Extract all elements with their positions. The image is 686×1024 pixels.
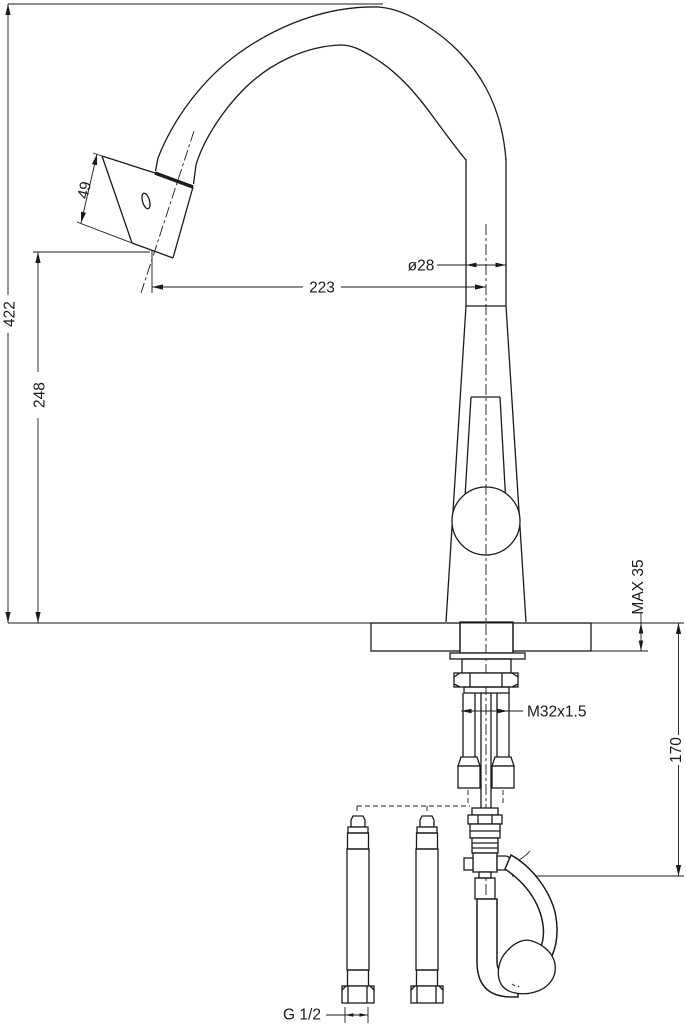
hose-crimp-nut	[475, 878, 495, 899]
hose-connector-assembly	[464, 808, 510, 899]
dim-label-g12: G 1/2	[283, 1006, 321, 1023]
hose-hex-nut	[411, 986, 443, 1003]
dimension-d28-spout-diameter: ø28	[408, 257, 506, 274]
dim-label-248: 248	[31, 382, 48, 408]
dim-label-170: 170	[668, 737, 685, 763]
threaded-shank	[460, 622, 513, 653]
dim-label-d28: ø28	[408, 257, 435, 274]
supply-hose-2	[411, 816, 443, 1003]
faucet-installation-diagram: 422 248 49 223 ø28 MAX 35 M32x1.5	[0, 0, 686, 1024]
dimension-49-spray-head: 49	[75, 153, 132, 243]
dim-label-m32: M32x1.5	[527, 703, 586, 720]
countertop-slab-left	[371, 623, 460, 651]
dimension-max35-countertop: MAX 35	[591, 559, 648, 651]
dimension-g12-supply-thread: G 1/2	[283, 1006, 368, 1023]
mounting-shank	[450, 622, 525, 693]
braided-hose-body	[416, 849, 438, 970]
dimension-422-total-height: 422	[1, 4, 383, 623]
braided-hose-body	[347, 849, 369, 970]
spout-outer-curve	[156, 7, 507, 171]
dimension-223-reach: 223	[152, 250, 486, 296]
technical-drawing-page: 422 248 49 223 ø28 MAX 35 M32x1.5	[0, 0, 686, 1024]
dimension-248-spout-height: 248	[31, 252, 150, 623]
spray-head-seam	[155, 173, 193, 187]
countertop-slab-right	[513, 623, 591, 651]
spout-inner-curve	[194, 45, 467, 184]
spray-head	[102, 131, 194, 293]
dimension-m32-thread: M32x1.5	[461, 703, 586, 720]
handle-lever	[465, 397, 506, 497]
dim-label-422: 422	[1, 301, 18, 327]
faucet-spout	[156, 7, 527, 622]
dimension-170-hose-drop: 170	[668, 623, 685, 876]
dim-label-49: 49	[75, 180, 95, 201]
dim-label-max35: MAX 35	[630, 559, 647, 614]
spray-button	[140, 192, 151, 209]
valve-body	[473, 853, 497, 872]
washer	[450, 653, 525, 659]
hose-hex-nut	[342, 986, 374, 1003]
dim-label-223: 223	[309, 279, 335, 296]
supply-hose-1	[342, 816, 374, 1003]
countertop	[8, 623, 684, 651]
lock-nut	[454, 673, 518, 687]
